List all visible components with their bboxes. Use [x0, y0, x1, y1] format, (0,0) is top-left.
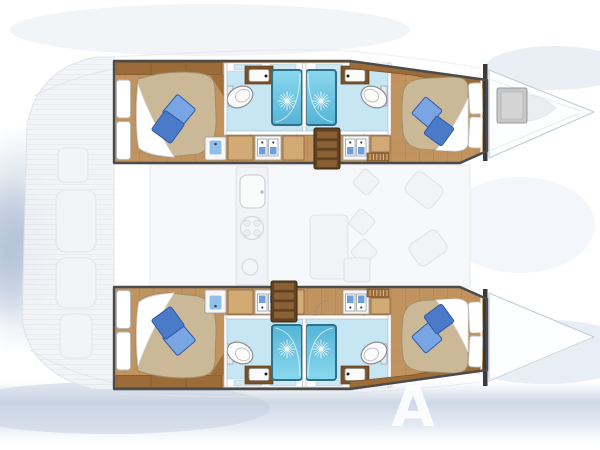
louver-vent-icon — [367, 153, 389, 161]
shower-cubicle-icon — [272, 325, 302, 380]
floorplan-svg: A — [0, 0, 600, 450]
catamaran-floorplan: A — [0, 0, 600, 450]
wardrobe-icon — [228, 136, 253, 160]
companionway-stairs — [271, 281, 297, 322]
wardrobe-icon — [371, 298, 390, 314]
hull-window-panel — [117, 122, 131, 160]
locker-unit — [343, 290, 369, 314]
hull-window-panel — [117, 291, 131, 329]
companionway-stairs — [314, 128, 340, 169]
hull-window-panel — [117, 332, 131, 370]
locker-unit — [343, 136, 369, 160]
wardrobe-icon — [283, 136, 304, 160]
watermark-letter: A — [391, 375, 435, 440]
hull-interior — [114, 61, 488, 163]
washbasin-icon — [245, 366, 273, 384]
lower-hull — [114, 281, 488, 389]
wardrobe-icon — [371, 136, 390, 152]
hull-interior — [114, 287, 488, 389]
stove-icon — [241, 217, 264, 240]
shower-cubicle-icon — [306, 325, 336, 380]
corridor-lockers — [205, 136, 390, 161]
galley-round-icon — [242, 259, 258, 275]
bow-hatch-icon — [497, 88, 527, 123]
washbasin-cabinet — [205, 290, 226, 313]
washbasin-icon — [245, 66, 273, 84]
shower-cubicle-icon — [306, 70, 336, 125]
galley-ghost — [236, 167, 268, 285]
shower-cubicle-icon — [272, 70, 302, 125]
washbasin-cabinet — [205, 137, 226, 160]
upper-hull — [114, 61, 488, 169]
louver-vent-icon — [367, 289, 389, 297]
wardrobe-icon — [228, 290, 253, 314]
hull-window-panel — [117, 80, 131, 118]
saloon-ghost — [150, 165, 470, 287]
locker-unit — [255, 136, 281, 160]
